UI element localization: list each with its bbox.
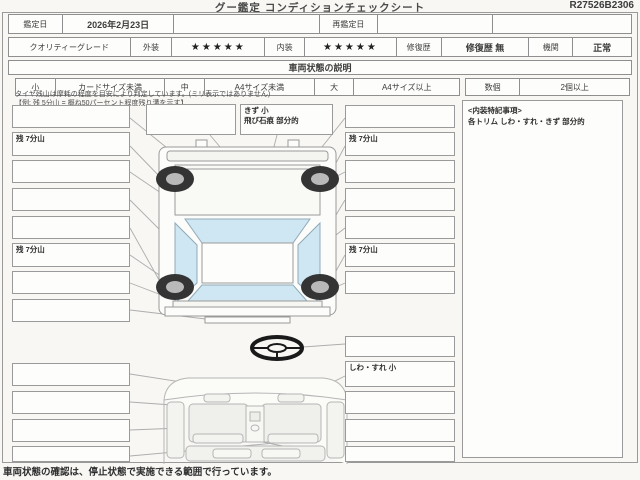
interior-label: 内装 [265,38,305,56]
interior-note-box-right-4 [345,419,455,442]
interior-note-box-left-1 [12,363,130,386]
interior-star-rating: ★★★★★ [305,38,397,56]
condition-check-sheet: グー鑑定 コンディションチェックシート R27526B2306 鑑定日 2026… [0,0,640,480]
exterior-note-box-right-3 [345,160,455,183]
damage-count-legend: 数個 2個以上 [465,78,630,96]
car-interior-diagram [158,366,353,466]
exterior-note-box-left-3 [12,160,130,183]
appraisal-date-label: 鑑定日 [9,15,63,33]
interior-note-box-right-2: しわ・すれ 小 [345,361,455,387]
section-title: 車両状態の説明 [8,60,632,75]
appraisal-date-row: 鑑定日 2026年2月23日 再鑑定日 [8,14,632,34]
exterior-note-box-left-6: 残 7分山 [12,243,130,267]
appraisal-date-value: 2026年2月23日 [63,15,175,33]
interior-note-box-right-1 [345,336,455,357]
tire-tread-note-line1: タイヤ残山は摩耗の程度を目安により判定しています。(ミリ表示ではありません) [15,90,435,99]
steering-wheel-icon [248,334,306,362]
sheet-reference-number: R27526B2306 [570,0,635,11]
repair-history-value: 修復歴 無 [442,38,530,56]
count-desc: 2個以上 [520,79,629,95]
exterior-note-box-left-1 [12,105,130,128]
interior-remarks-body: 各トリム しわ・すれ・きず 部分的 [468,116,617,127]
exterior-star-rating: ★★★★★ [172,38,265,56]
engine-label: 機関 [529,38,573,56]
exterior-note-box-top-1 [146,104,236,135]
interior-note-box-right-3 [345,391,455,414]
reappraisal-date-extra [493,15,631,33]
quality-grade-row: クオリティーグレード 外装 ★★★★★ 内装 ★★★★★ 修復歴 修復歴 無 機… [8,37,632,57]
quality-grade-label: クオリティーグレード [9,38,131,56]
interior-note-box-right-5 [345,446,455,462]
exterior-note-box-right-1 [345,105,455,128]
exterior-note-box-right-4 [345,188,455,211]
exterior-note-box-right-5 [345,216,455,239]
sheet-title: グー鑑定 コンディションチェックシート [0,0,640,15]
exterior-note-box-right-2: 残 7分山 [345,132,455,156]
exterior-note-box-left-2: 残 7分山 [12,132,130,156]
interior-remarks-title: <内装特記事項> [468,105,617,116]
exterior-note-box-left-5 [12,216,130,239]
engine-value: 正常 [573,38,631,56]
reappraisal-date-label: 再鑑定日 [320,15,378,33]
repair-history-label: 修復歴 [397,38,442,56]
footer-note: 車両状態の確認は、停止状態で実施できる範囲で行っています。 [3,464,277,478]
exterior-note-box-right-7 [345,271,455,294]
appraisal-date-extra [174,15,320,33]
count-label: 数個 [466,79,520,95]
exterior-note-box-left-7 [12,271,130,294]
interior-note-box-left-2 [12,391,130,414]
interior-note-box-left-4 [12,446,130,462]
car-top-view-diagram [145,135,350,327]
exterior-note-box-right-6: 残 7分山 [345,243,455,267]
exterior-note-box-left-4 [12,188,130,211]
exterior-label: 外装 [131,38,173,56]
exterior-note-box-top-2: きず 小 飛び石痕 部分的 [240,104,333,135]
exterior-note-box-left-8 [12,299,130,322]
interior-remarks-box: <内装特記事項> 各トリム しわ・すれ・きず 部分的 [462,100,623,458]
interior-note-box-left-3 [12,419,130,442]
reappraisal-date-value [378,15,494,33]
